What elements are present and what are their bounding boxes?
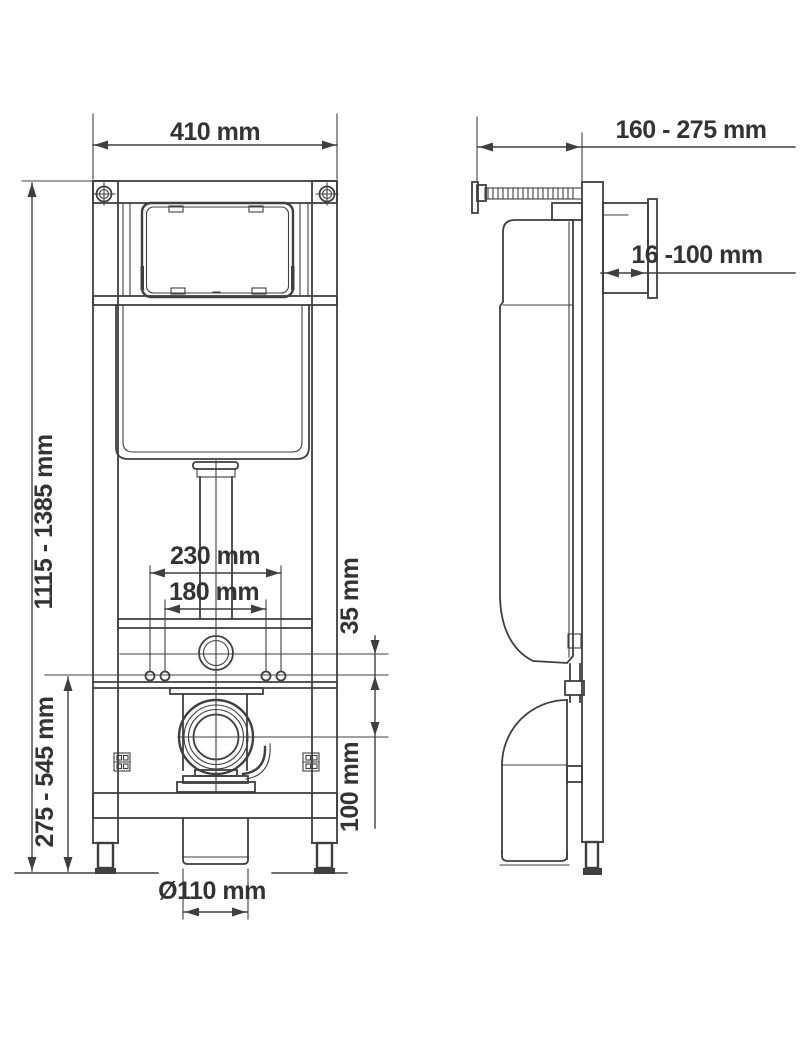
frame-outline: [93, 181, 337, 843]
drain-elbow-side: [500, 700, 582, 865]
outlet-to-bolts-label: 35 mm: [336, 558, 364, 635]
drain-pipe-bottom: [183, 818, 248, 864]
drain-elbow-front: [170, 688, 270, 792]
bolts-to-drain-label: 100 mm: [336, 742, 364, 832]
dim-fixing-height: 275 - 545 mm: [31, 677, 73, 871]
frame-height-label: 1115 - 1385 mm: [30, 434, 58, 609]
flush-pipe: [193, 461, 238, 792]
wc-frame-drawing: 410 mm 1115 - 1385 mm 275 - 545 mm 230 m…: [0, 0, 800, 1047]
bolt-spacing-outer-label: 230 mm: [170, 542, 260, 570]
drain-diameter-label: Ø110 mm: [158, 877, 266, 905]
flush-plate-access-panel: [141, 203, 295, 297]
wall-anchor-rod: [472, 182, 582, 213]
frame-rail-side: [582, 182, 603, 842]
dim-drain-diameter: Ø110 mm: [158, 869, 266, 919]
cistern-profile: [500, 203, 584, 702]
side-view: [472, 182, 657, 875]
frame-depth-label: 160 - 275 mm: [615, 116, 766, 144]
mounting-screw-icon: [93, 183, 338, 205]
flush-shaft-depth-label: 16 -100 mm: [631, 241, 762, 269]
foot-side: [582, 842, 603, 875]
dim-frame-depth: 160 - 275 mm: [477, 116, 795, 182]
cistern-tank: [116, 305, 309, 459]
adjustable-feet: [93, 843, 337, 874]
technical-drawing-page: 410 mm 1115 - 1385 mm 275 - 545 mm 230 m…: [0, 0, 800, 1047]
dim-flush-shaft-depth: 16 -100 mm: [601, 241, 795, 278]
frame-width-label: 410 mm: [170, 118, 260, 146]
dimensions: 410 mm 1115 - 1385 mm 275 - 545 mm 230 m…: [22, 114, 795, 919]
bolt-spacing-inner-label: 180 mm: [169, 578, 259, 606]
fixing-height-label: 275 - 545 mm: [31, 696, 59, 847]
dim-frame-width: 410 mm: [93, 114, 337, 179]
front-view: [15, 181, 347, 874]
